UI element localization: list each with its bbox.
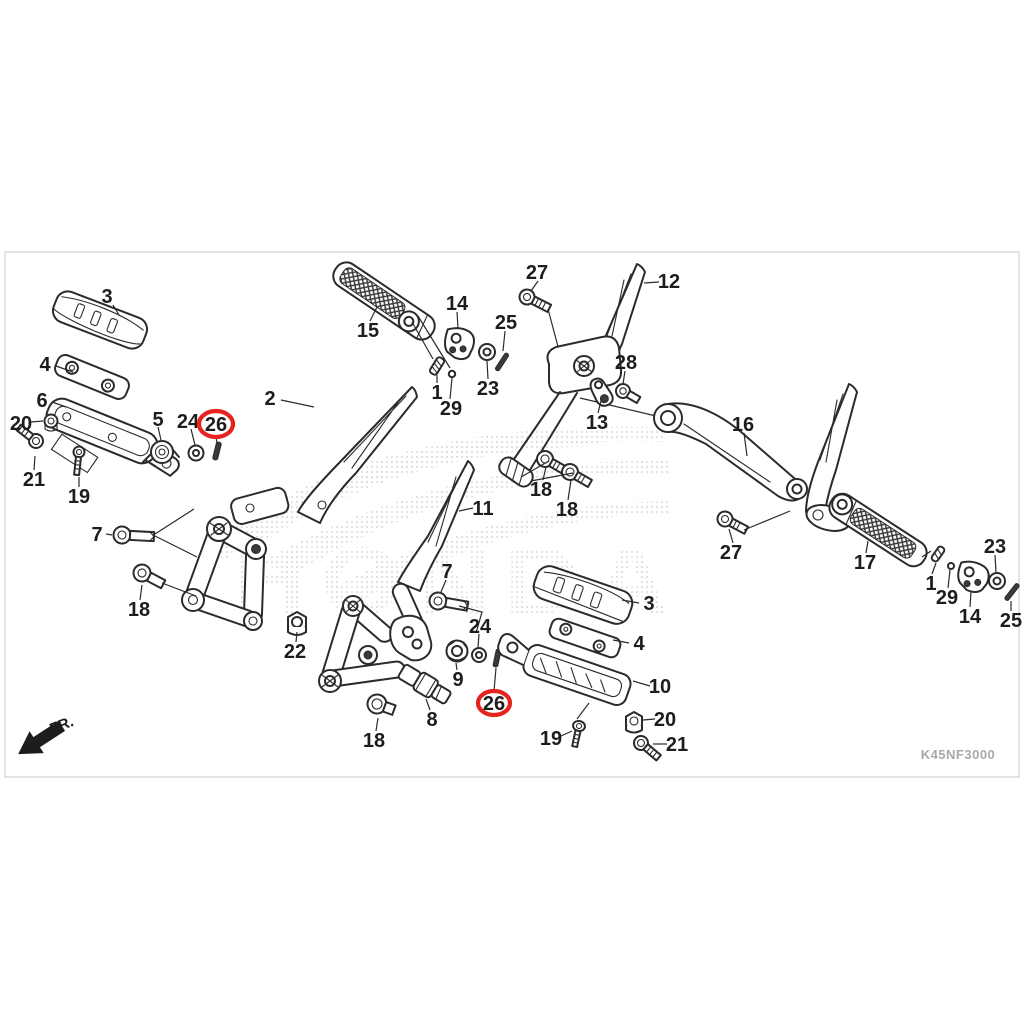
part-24-washer-left (189, 446, 204, 461)
part-27-pivot-bolt-lower (715, 509, 750, 537)
callout-21: 21 (23, 469, 45, 491)
part-18-bolt-left (131, 562, 168, 592)
leader-line (487, 361, 488, 379)
callout-4: 4 (39, 354, 51, 376)
callout-11: 11 (472, 498, 493, 520)
callout-3: 3 (643, 593, 654, 615)
part-15-footpeg-front-right (329, 258, 440, 344)
part-1-spring-top (429, 356, 445, 376)
leader-line (31, 421, 43, 422)
part-14-joint-plate-right (954, 559, 991, 595)
callout-5: 5 (152, 409, 163, 431)
part-14-joint-plate-top (442, 326, 477, 361)
callout-24: 24 (469, 616, 492, 638)
part-19-screw-right (569, 720, 586, 748)
callout-29: 29 (440, 398, 462, 420)
part-23-washer-top (479, 344, 495, 360)
callout-14: 14 (959, 606, 982, 628)
callout-18: 18 (556, 499, 578, 521)
callout-14: 14 (446, 293, 469, 315)
parts-diagram-page: HONDA (0, 0, 1024, 1024)
callout-15: 15 (357, 320, 379, 342)
part-25-pin-top (495, 352, 510, 371)
assembly-line-bolt27-lower (744, 511, 790, 530)
leader-line (494, 668, 496, 691)
callout-27: 27 (526, 262, 548, 284)
part-7-bolt-left (113, 526, 154, 545)
callout-19: 19 (68, 486, 90, 508)
part-24-washer-center (472, 648, 486, 662)
leader-line (866, 541, 868, 553)
callout-10: 10 (649, 676, 671, 698)
callout-23: 23 (984, 536, 1006, 558)
part-19-screw-left (71, 446, 85, 475)
callout-27: 27 (720, 542, 742, 564)
callout-6: 6 (36, 390, 47, 412)
callout-23: 23 (477, 378, 499, 400)
callout-22: 22 (284, 641, 306, 663)
part-22-nut-center (288, 612, 306, 635)
leader-line (34, 456, 35, 470)
diagram-code: K45NF3000 (921, 747, 996, 762)
callout-4: 4 (633, 633, 645, 655)
callout-18: 18 (363, 730, 385, 752)
callout-8: 8 (426, 709, 437, 731)
callout-21: 21 (666, 734, 688, 756)
callout-2: 2 (264, 388, 275, 410)
callout-19: 19 (540, 728, 562, 750)
part-4-step-plate-left (53, 353, 132, 402)
callout-12: 12 (658, 271, 680, 293)
leader-line (948, 570, 950, 588)
callout-13: 13 (586, 412, 608, 434)
callout-17: 17 (854, 552, 876, 574)
part-20-nut-right (626, 712, 642, 733)
callout-highlighted-26: 26 (483, 693, 505, 715)
part-27-pivot-bolt-top (517, 287, 553, 315)
part-8-pivot-shaft (397, 662, 454, 707)
leader-line (450, 378, 452, 399)
part-29-ball-top (449, 371, 455, 377)
part-26-pin-left (212, 442, 221, 461)
leader-line (459, 508, 473, 511)
callout-18: 18 (530, 479, 552, 501)
leader-line (970, 592, 971, 607)
assembly-line-bolt7-left (155, 509, 197, 557)
callout-7: 7 (441, 561, 452, 583)
part-1-spring-right (931, 545, 946, 562)
callout-25: 25 (1000, 610, 1022, 632)
part-21-bolt-right (631, 733, 663, 763)
leader-line (376, 718, 378, 731)
callout-9: 9 (452, 669, 463, 691)
assembly-line-screw19 (577, 703, 589, 719)
leader-line (281, 400, 314, 407)
callout-28: 28 (615, 352, 637, 374)
callout-29: 29 (936, 587, 958, 609)
leader-line (644, 282, 659, 283)
part-28-bolt (613, 381, 642, 406)
part-23-washer-right (989, 573, 1005, 589)
part-25-pin-right (1004, 583, 1020, 601)
part-9-bushing (447, 641, 468, 662)
part-3-step-rubber-left (49, 288, 150, 352)
callout-24: 24 (177, 411, 200, 433)
callout-18: 18 (128, 599, 150, 621)
leader-line (561, 731, 572, 736)
part-16-step-arm-rear (654, 403, 807, 500)
callout-20: 20 (10, 413, 32, 435)
callout-7: 7 (91, 524, 102, 546)
part-29-ball-right (948, 563, 954, 569)
leader-line (633, 681, 650, 686)
callout-16: 16 (732, 414, 754, 436)
leader-line (106, 534, 112, 535)
part-18-bolt-center (365, 692, 397, 719)
callout-20: 20 (654, 709, 676, 731)
exploded-parts-diagram: HONDA (0, 0, 1024, 1024)
leader-line (729, 529, 733, 543)
fr-label: FR. (47, 713, 76, 738)
callout-3: 3 (101, 286, 112, 308)
callout-highlighted-26: 26 (205, 414, 227, 436)
callout-25: 25 (495, 312, 517, 334)
leader-line (568, 480, 571, 500)
leader-line (140, 585, 142, 600)
